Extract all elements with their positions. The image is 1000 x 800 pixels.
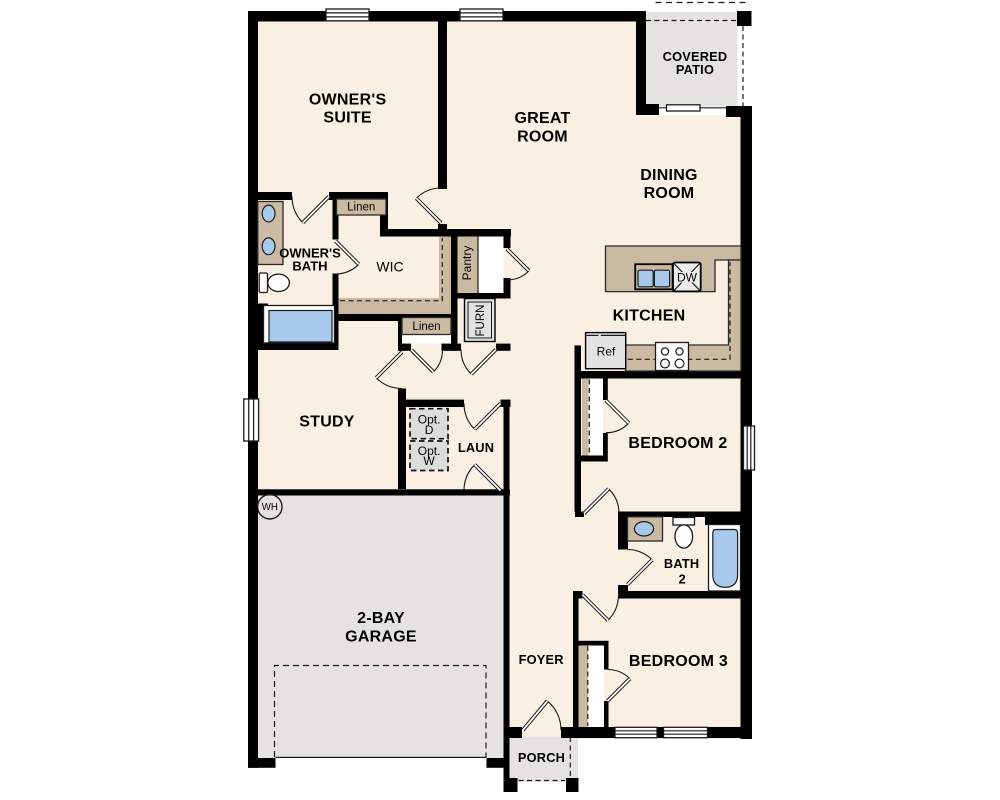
svg-text:PATIO: PATIO — [676, 62, 714, 77]
svg-text:DINING: DINING — [640, 167, 698, 184]
svg-text:WH: WH — [262, 502, 278, 513]
svg-text:KITCHEN: KITCHEN — [613, 307, 686, 324]
svg-text:2-BAY: 2-BAY — [357, 610, 405, 627]
svg-text:BEDROOM 2: BEDROOM 2 — [628, 435, 727, 452]
svg-text:OWNER'S: OWNER'S — [309, 92, 387, 109]
svg-text:Linen: Linen — [347, 202, 375, 214]
svg-text:ROOM: ROOM — [644, 185, 695, 202]
svg-text:STUDY: STUDY — [299, 413, 355, 430]
svg-text:ROOM: ROOM — [517, 128, 568, 145]
svg-text:BATH: BATH — [292, 259, 327, 274]
svg-text:GARAGE: GARAGE — [345, 628, 417, 645]
svg-text:W: W — [423, 454, 435, 468]
svg-text:DW: DW — [677, 270, 698, 284]
svg-text:Linen: Linen — [412, 321, 440, 333]
svg-text:PORCH: PORCH — [518, 750, 565, 765]
svg-text:GREAT: GREAT — [514, 110, 570, 127]
svg-text:BEDROOM 3: BEDROOM 3 — [629, 653, 728, 670]
svg-text:FURN: FURN — [475, 305, 487, 337]
svg-text:D: D — [425, 423, 434, 437]
svg-text:BATH: BATH — [664, 556, 699, 571]
svg-text:SUITE: SUITE — [323, 110, 371, 127]
svg-text:LAUN: LAUN — [458, 440, 494, 455]
svg-text:Ref: Ref — [597, 345, 616, 359]
svg-text:WIC: WIC — [376, 259, 403, 275]
svg-text:2: 2 — [679, 572, 686, 587]
svg-text:FOYER: FOYER — [519, 652, 564, 667]
svg-text:Pantry: Pantry — [460, 246, 474, 281]
